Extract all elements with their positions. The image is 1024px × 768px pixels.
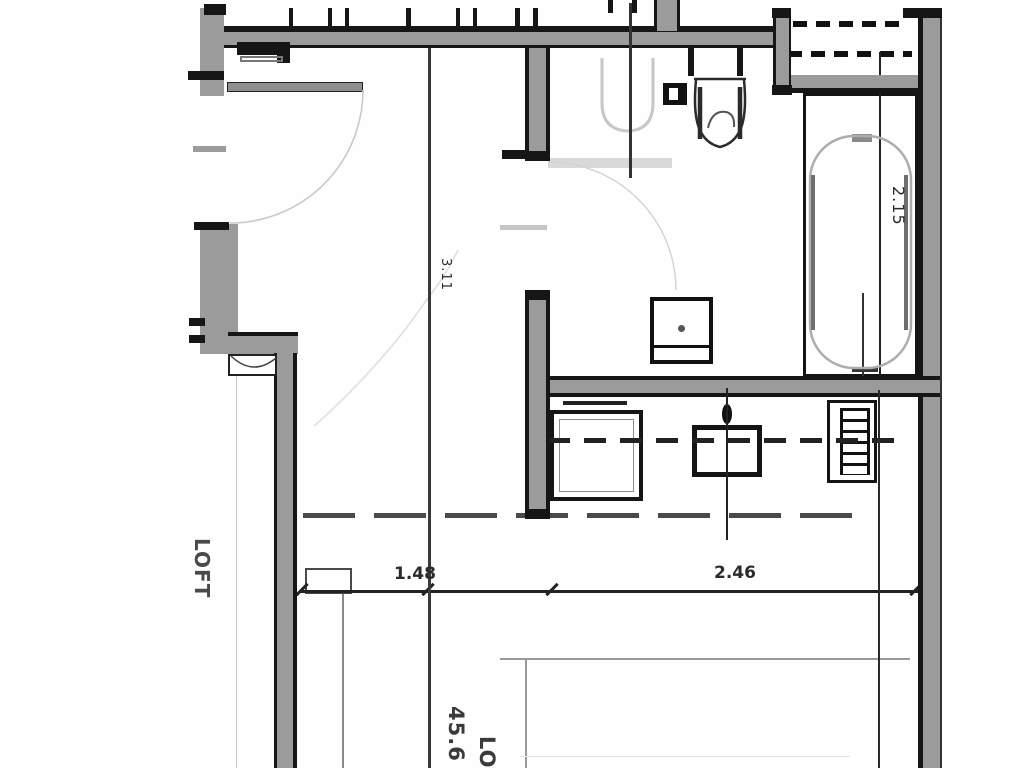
heater-centerline — [726, 388, 728, 540]
room-area-main: 45.6 — [445, 706, 466, 762]
entry-door-swing-arc — [230, 90, 363, 223]
toilet-seat-arc — [708, 112, 734, 128]
room-label-adjacent-loft: LOFT — [192, 538, 212, 598]
sill-curve — [231, 356, 276, 367]
entry-partition-line — [629, 3, 632, 178]
plan-curves-layer — [0, 0, 1024, 768]
dimension-label-bottom-right: 2.46 — [710, 565, 760, 582]
bathroom-door-swing-arc — [548, 162, 676, 290]
dimension-label-bathtub: 2.15 — [890, 186, 906, 226]
toilet-bowl-outline — [695, 80, 745, 147]
floorplan-canvas: 2.15 3.11 1.48 2.46 LOFT 45.6 LOFT — [0, 0, 1024, 768]
dimension-label-hallway: 3.11 — [439, 258, 452, 291]
washbasin-ghost — [602, 58, 653, 131]
bathtub-basin — [810, 136, 911, 368]
dimension-label-bottom-left: 1.48 — [390, 566, 440, 583]
hallway-partition-line — [428, 48, 431, 768]
sketch-squiggle — [314, 250, 458, 426]
room-label-main: LOFT — [476, 736, 497, 768]
shaft-edge-line — [878, 390, 880, 768]
